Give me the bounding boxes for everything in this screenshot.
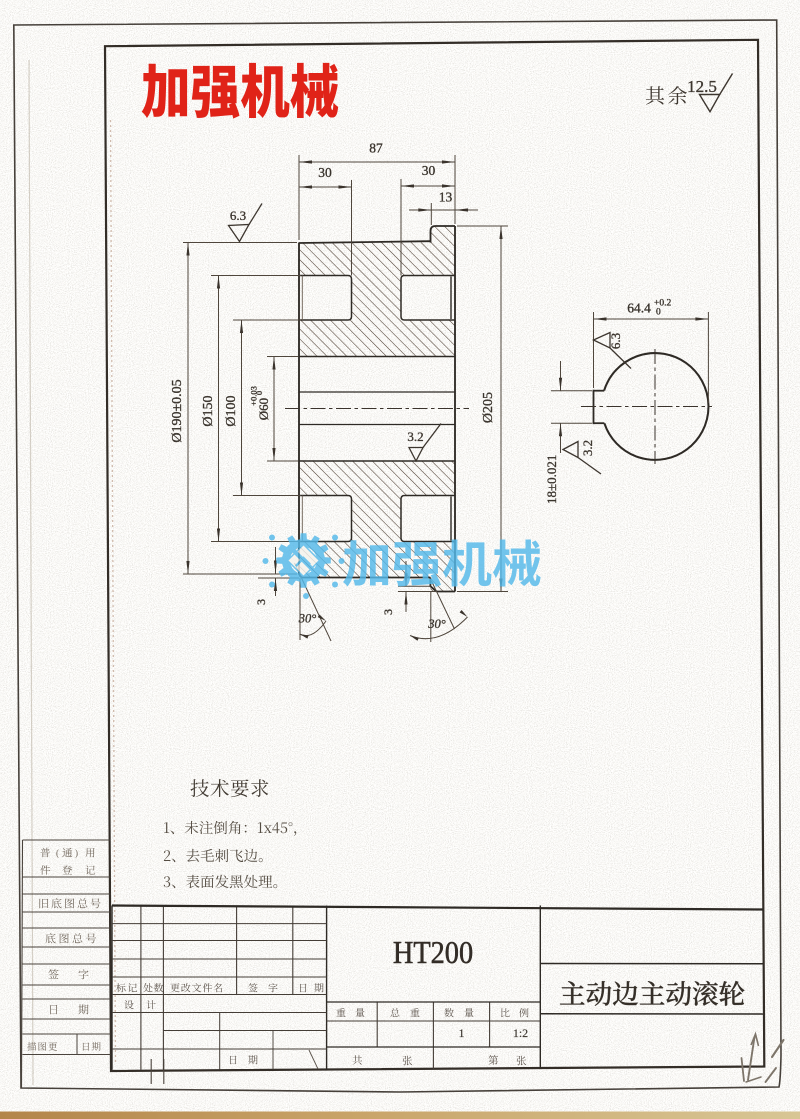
svg-text:): ) xyxy=(75,848,78,858)
svg-text:Ø205: Ø205 xyxy=(481,392,496,423)
svg-text:3: 3 xyxy=(254,599,268,605)
svg-text:30: 30 xyxy=(422,163,436,178)
svg-text:Ø150: Ø150 xyxy=(201,395,216,426)
svg-text:87: 87 xyxy=(369,141,383,156)
svg-text:18±0.021: 18±0.021 xyxy=(544,455,559,504)
svg-text:3: 3 xyxy=(381,609,395,615)
svg-text:30°: 30° xyxy=(298,612,317,626)
svg-text:12.5: 12.5 xyxy=(687,77,717,96)
svg-text:(: ( xyxy=(56,848,59,858)
svg-text:0: 0 xyxy=(656,308,661,318)
svg-text:0: 0 xyxy=(254,391,264,395)
svg-text:6.3: 6.3 xyxy=(608,333,623,349)
svg-text:3.2: 3.2 xyxy=(580,440,595,456)
svg-text:1:2: 1:2 xyxy=(513,1026,528,1040)
svg-text:30: 30 xyxy=(318,165,332,180)
svg-text:64.4: 64.4 xyxy=(627,301,651,316)
svg-text:Ø190±0.05: Ø190±0.05 xyxy=(170,379,185,442)
svg-text:6.3: 6.3 xyxy=(230,208,246,223)
svg-text:3.2: 3.2 xyxy=(407,429,423,444)
svg-text:Ø100: Ø100 xyxy=(224,395,239,426)
svg-text:30°: 30° xyxy=(427,617,446,631)
svg-text:13: 13 xyxy=(439,190,453,205)
svg-text:HT200: HT200 xyxy=(393,936,473,971)
svg-text:1: 1 xyxy=(459,1026,465,1040)
